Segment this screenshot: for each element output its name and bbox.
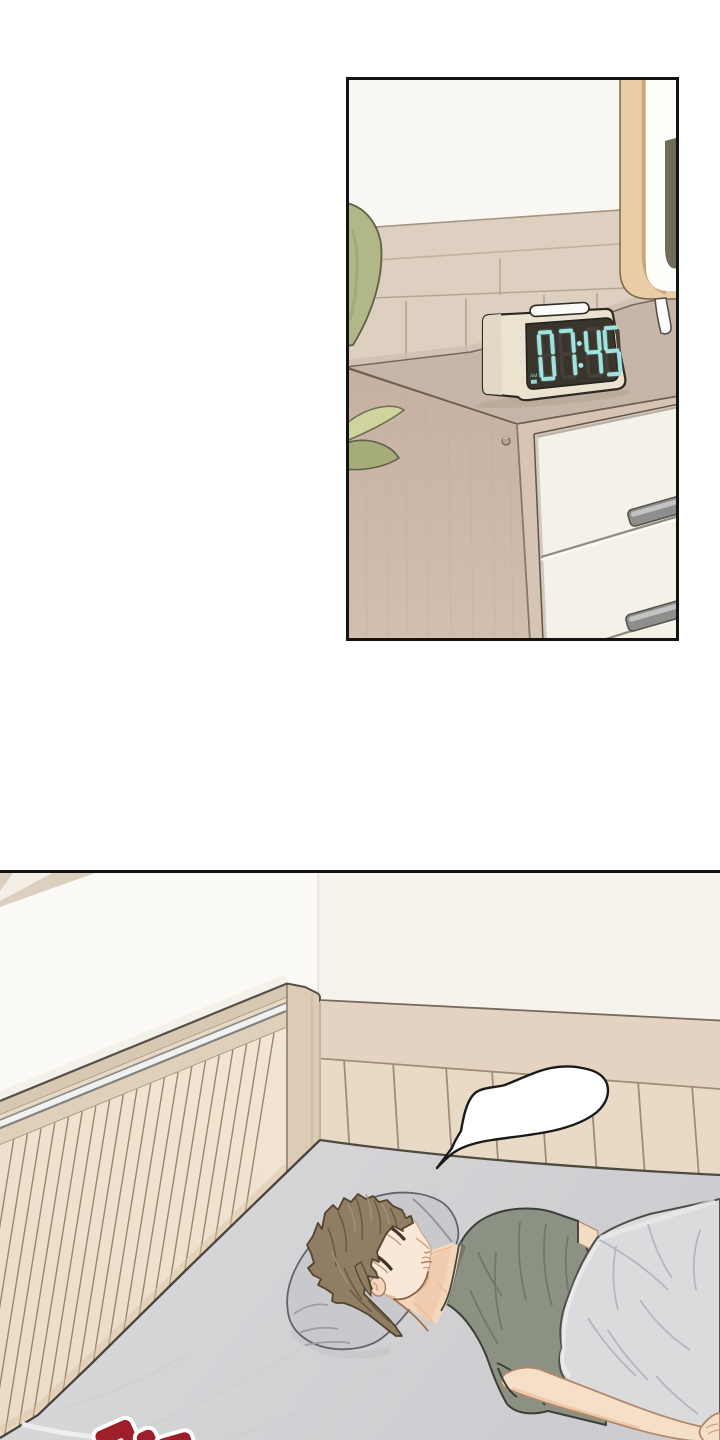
svg-text:AM: AM	[530, 373, 538, 380]
